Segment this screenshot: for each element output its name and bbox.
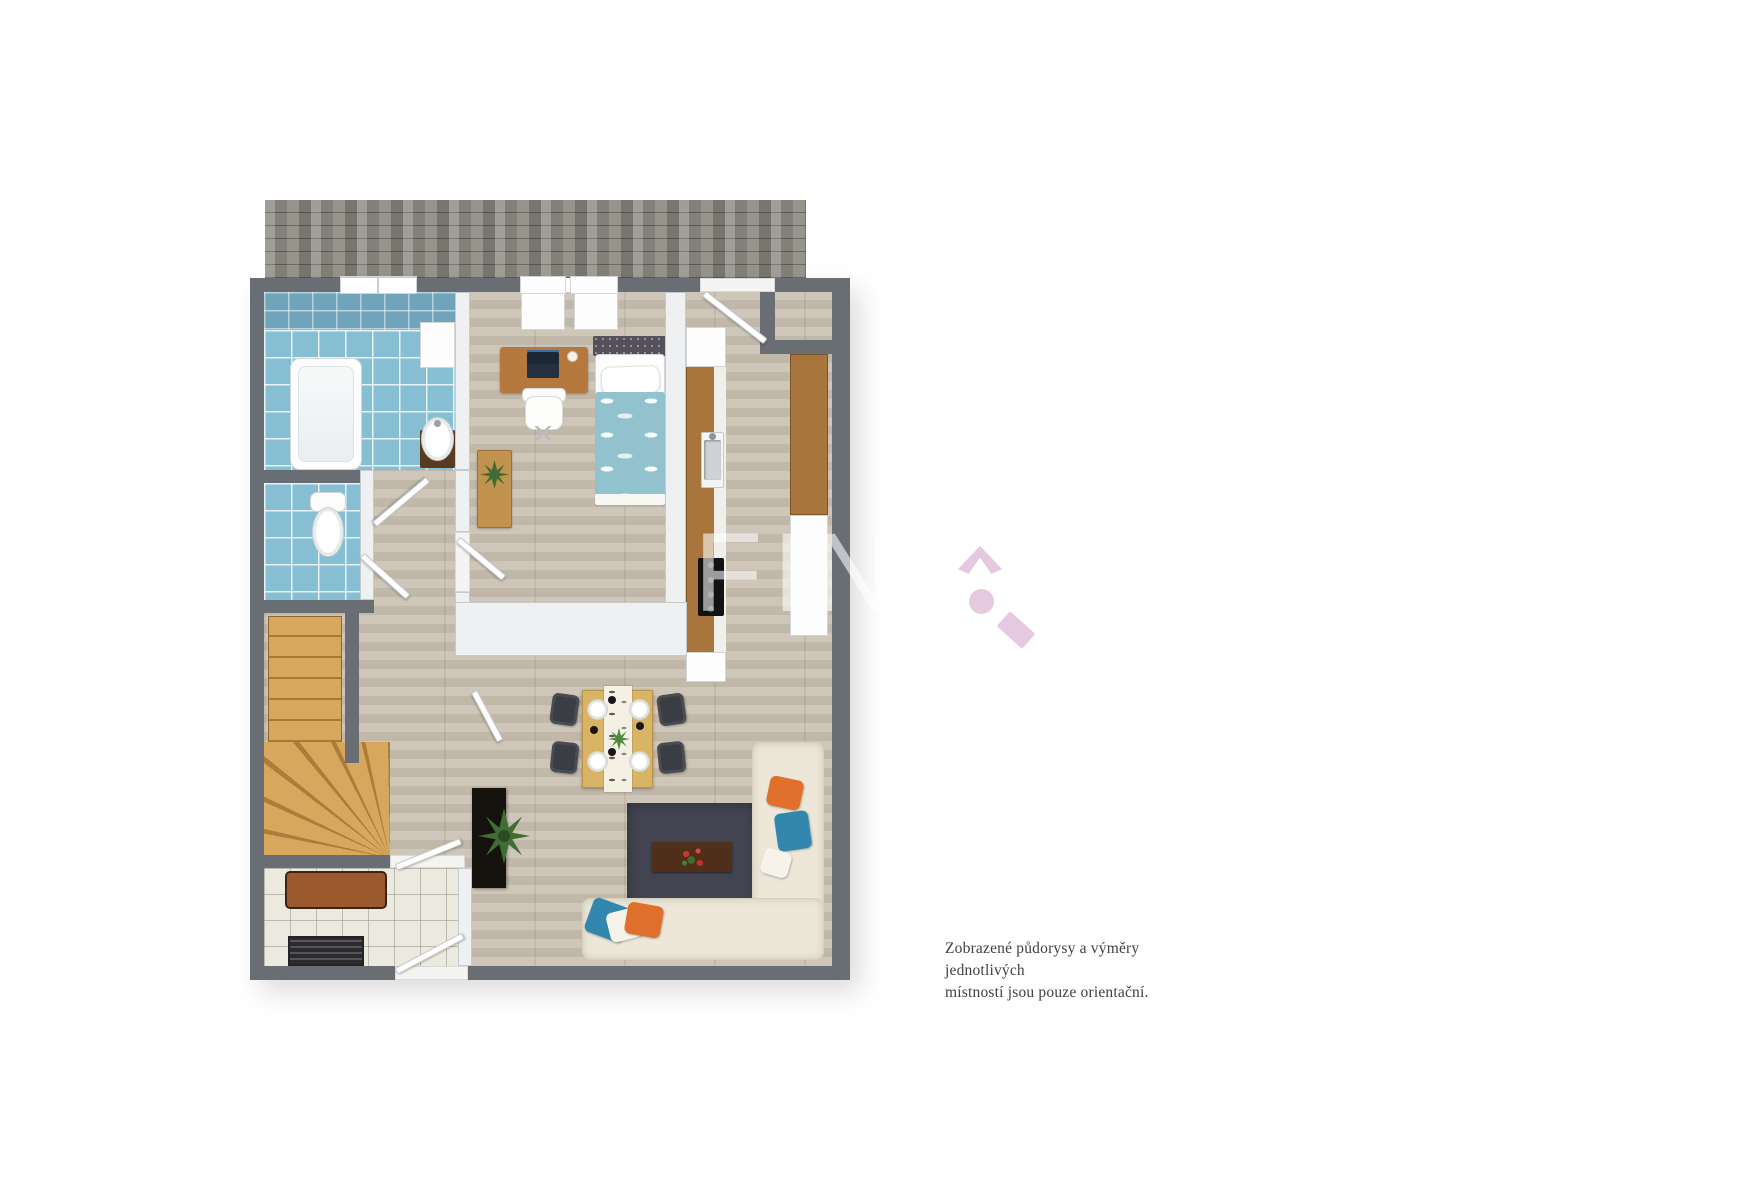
- wall-hall-bedroom-upper: [455, 470, 470, 532]
- wall-wc-hall: [360, 470, 374, 600]
- logo-handle-icon: [997, 611, 1036, 649]
- dinner-plate: [588, 752, 607, 771]
- wine-glass: [636, 722, 644, 730]
- bed-pillow: [601, 365, 661, 395]
- wall-terrace-step-h: [760, 340, 846, 354]
- bedroom-window-sill-right: [574, 292, 618, 330]
- logo-dot-icon: [969, 589, 994, 614]
- wall-bathroom-wc: [264, 470, 360, 483]
- wall-bottom-1: [250, 966, 395, 980]
- entry-doormat: [290, 938, 362, 964]
- desk-chair-seat: [525, 396, 563, 430]
- terrace-pavers: [265, 200, 806, 278]
- disclaimer-text: Zobrazené půdorysy a výměry jednotlivých…: [945, 938, 1205, 1004]
- floor-plant-center: [498, 830, 510, 842]
- sofa-pillow-teal: [774, 810, 813, 852]
- wall-top-3: [618, 278, 700, 292]
- wall-stairs-entry: [264, 855, 390, 868]
- kitchen-tall-cabinet: [790, 354, 828, 515]
- sofa-pillow-orange: [623, 901, 664, 939]
- wine-glass: [590, 726, 598, 734]
- wall-wc-stairs: [264, 600, 374, 613]
- kitchen-sink-basin: [704, 440, 721, 480]
- logo-roof-icon: [958, 546, 1002, 574]
- wall-bedroom-living: [455, 602, 687, 656]
- wine-glass: [608, 696, 616, 704]
- kitchen-side-counter: [790, 515, 828, 636]
- entry-bench: [287, 873, 385, 907]
- wall-right: [832, 278, 850, 980]
- toilet-bowl: [313, 508, 343, 556]
- bedroom-window-left: [520, 276, 566, 294]
- bed-headboard: [593, 336, 667, 356]
- kitchen-faucet: [709, 433, 716, 440]
- staircase-winder-treads: [264, 742, 390, 858]
- wall-entry-living: [458, 868, 472, 966]
- bed-duvet: [595, 392, 665, 496]
- kitchen-counter-cap-top: [686, 327, 726, 367]
- dinner-plate: [630, 752, 649, 771]
- nightstand-plant: [480, 460, 509, 489]
- wall-left: [250, 278, 264, 980]
- dining-chair: [656, 741, 686, 775]
- bed-sheet-fold: [595, 494, 665, 505]
- dinner-plate: [588, 700, 607, 719]
- wine-glass: [608, 748, 616, 756]
- bedroom-window-right: [570, 276, 618, 294]
- wall-bedroom-kitchen: [665, 292, 686, 608]
- desk-chair-base: [530, 426, 556, 440]
- disclaimer-line-2: místností jsou pouze orientační.: [945, 982, 1205, 1004]
- wall-bottom-2: [468, 966, 850, 980]
- dining-chair: [549, 741, 579, 775]
- wall-bathroom-bedroom: [455, 292, 470, 470]
- kitchen-counter-cap-bottom: [686, 652, 726, 682]
- dinner-plate: [630, 700, 649, 719]
- dining-chair: [656, 692, 687, 726]
- washbasin-faucet: [434, 420, 441, 427]
- kitchen-cooktop: [698, 558, 724, 616]
- dining-chair: [549, 692, 580, 726]
- desk-monitor: [527, 350, 559, 378]
- terrace-door-threshold: [700, 278, 775, 292]
- bathroom-window: [340, 276, 417, 294]
- bathroom-shelf: [420, 322, 455, 368]
- wall-stairs-hall: [345, 613, 359, 763]
- desk-mug: [568, 352, 577, 361]
- floor-plan-canvas: FIN Zobrazené půdorysy a výměry jednotli…: [0, 0, 1745, 1200]
- bedroom-window-sill-left: [521, 292, 565, 330]
- bathtub-basin: [298, 366, 354, 462]
- disclaimer-line-1: Zobrazené půdorysy a výměry jednotlivých: [945, 938, 1205, 982]
- wall-top-2: [417, 278, 520, 292]
- coffee-table-flowers: [676, 842, 710, 872]
